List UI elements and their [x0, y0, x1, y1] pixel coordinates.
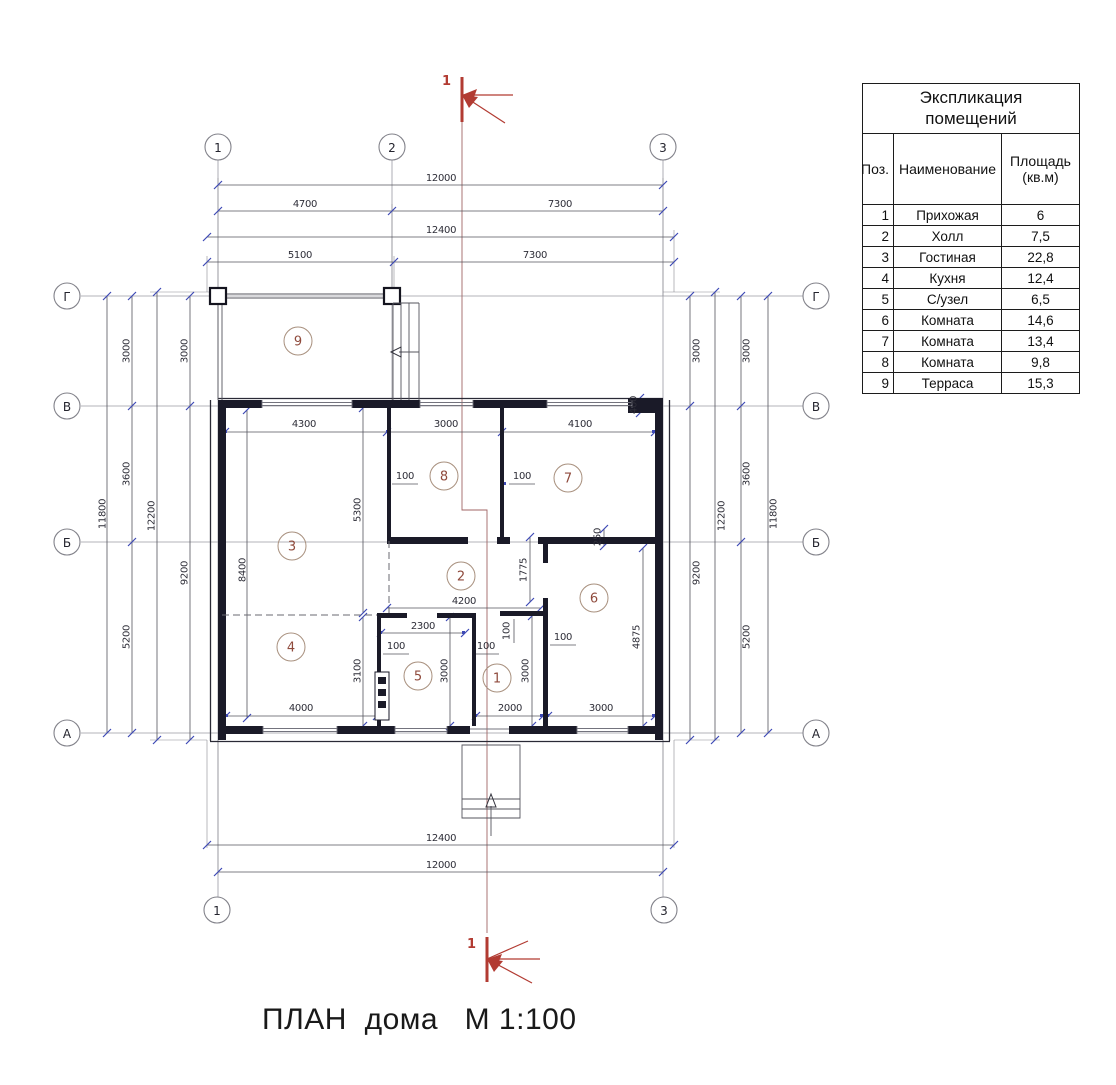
cell-name: Терраса — [894, 373, 1002, 393]
axis-label-b-right: Б — [812, 536, 820, 550]
dim-label: 3000 — [440, 659, 451, 683]
dim-label: 100 — [502, 622, 513, 640]
dim-label: 12200 — [147, 501, 158, 531]
table-title-line1: Экспликация — [863, 87, 1079, 108]
table-row: 5 С/узел 6,5 — [863, 289, 1079, 310]
dim-label: 2300 — [411, 621, 435, 632]
room-number: 3 — [288, 540, 296, 555]
axis-labels: 1 2 3 1 3 Г В Б А Г В Б А — [63, 141, 821, 918]
dim-label: 4000 — [289, 703, 313, 714]
dim-label: 5300 — [353, 498, 364, 522]
cell-area: 14,6 — [1002, 310, 1079, 330]
cell-area: 7,5 — [1002, 226, 1079, 246]
dim-label: 12400 — [426, 833, 456, 844]
col-header-name: Наименование — [894, 134, 1002, 204]
cell-name: Прихожая — [894, 205, 1002, 225]
axis-label-1-bottom: 1 — [213, 904, 221, 918]
dim-label: 100 — [554, 632, 572, 643]
dim-label: 3000 — [742, 339, 753, 363]
dim-label: 3000 — [521, 659, 532, 683]
room-number: 6 — [590, 592, 598, 607]
cell-pos: 3 — [863, 247, 894, 267]
cell-name: Комната — [894, 310, 1002, 330]
drawing-title: ПЛАН дома М 1:100 — [262, 1003, 577, 1037]
cell-pos: 2 — [863, 226, 894, 246]
section-label-top: 1 — [442, 74, 451, 89]
cell-area: 9,8 — [1002, 352, 1079, 372]
cell-pos: 7 — [863, 331, 894, 351]
dim-label: 3600 — [122, 462, 133, 486]
dim-label: 3000 — [122, 339, 133, 363]
table-row: 7 Комната 13,4 — [863, 331, 1079, 352]
section-arrow — [462, 95, 478, 108]
cell-pos: 8 — [863, 352, 894, 372]
vent-shaft — [375, 672, 389, 720]
axis-label-b-left: Б — [63, 536, 71, 550]
terrace-column — [210, 288, 226, 304]
dimension-labels-interior: 4300 3000 4100 4200 2300 4000 2000 3000 … — [238, 396, 643, 714]
dim-label: 3000 — [692, 339, 703, 363]
floor-plan-sheet: 1 1 — [0, 0, 1116, 1080]
cell-pos: 1 — [863, 205, 894, 225]
axis-label-g-left: Г — [63, 290, 70, 304]
section-label-bottom: 1 — [467, 937, 476, 952]
dim-label: 7300 — [548, 199, 572, 210]
terrace-lines — [218, 294, 392, 400]
dim-label: 5200 — [742, 625, 753, 649]
cell-pos: 5 — [863, 289, 894, 309]
porch-lines — [462, 745, 520, 836]
dim-label: 11800 — [769, 499, 780, 529]
dim-label: 7300 — [523, 250, 547, 261]
axis-grid — [81, 160, 803, 897]
table-row: 1 Прихожая 6 — [863, 205, 1079, 226]
cell-name: Комната — [894, 331, 1002, 351]
axis-label-g-right: Г — [812, 290, 819, 304]
axis-label-2: 2 — [388, 141, 396, 155]
dim-label: 4200 — [452, 596, 476, 607]
dim-label: 12000 — [426, 860, 456, 871]
porch-direction-arrow — [486, 794, 496, 807]
dim-label: 100 — [477, 641, 495, 652]
table-title-line2: помещений — [863, 108, 1079, 129]
axis-label-a-left: А — [63, 727, 72, 741]
cell-area: 22,8 — [1002, 247, 1079, 267]
room-number: 2 — [457, 570, 465, 585]
dim-label: 4300 — [292, 419, 316, 430]
axis-lines — [81, 160, 803, 897]
dim-label: 2000 — [498, 703, 522, 714]
cell-pos: 6 — [863, 310, 894, 330]
cell-area: 6 — [1002, 205, 1079, 225]
section-line — [462, 112, 487, 933]
col-header-area: Площадь (кв.м) — [1002, 134, 1079, 204]
axis-label-a-right: А — [812, 727, 821, 741]
cell-name: Гостиная — [894, 247, 1002, 267]
terrace-stairs — [393, 303, 419, 400]
dim-label: 4100 — [568, 419, 592, 430]
dim-label: 1775 — [519, 558, 530, 582]
table-title: Экспликация помещений — [863, 84, 1079, 134]
room-explication-table: Экспликация помещений Поз. Наименование … — [862, 83, 1080, 394]
room-number: 8 — [440, 470, 448, 485]
dim-label: 3000 — [434, 419, 458, 430]
col-header-pos: Поз. — [863, 134, 894, 204]
table-row: 6 Комната 14,6 — [863, 310, 1079, 331]
dim-label: 4875 — [632, 625, 643, 649]
cell-pos: 4 — [863, 268, 894, 288]
entrance-porch — [462, 745, 520, 836]
section-arrow — [487, 959, 503, 972]
terrace-column — [384, 288, 400, 304]
table-row: 8 Комната 9,8 — [863, 352, 1079, 373]
cell-name: Кухня — [894, 268, 1002, 288]
wall-outer-face — [210, 399, 670, 742]
dim-label: 11800 — [98, 499, 109, 529]
room-number: 4 — [287, 641, 295, 656]
axis-label-1: 1 — [214, 141, 222, 155]
axis-label-v-left: В — [63, 400, 71, 414]
dim-label: 3000 — [589, 703, 613, 714]
cell-pos: 9 — [863, 373, 894, 393]
dim-label: 9200 — [692, 561, 703, 585]
cell-area: 13,4 — [1002, 331, 1079, 351]
room-number: 5 — [414, 670, 422, 685]
dim-label: 12200 — [717, 501, 728, 531]
cell-area: 15,3 — [1002, 373, 1079, 393]
axis-bubbles — [54, 134, 829, 923]
dim-label: 3000 — [180, 339, 191, 363]
dimension-labels-right: 3000 9200 12200 3000 3600 5200 11800 — [692, 339, 780, 649]
cell-area: 6,5 — [1002, 289, 1079, 309]
cell-area: 12,4 — [1002, 268, 1079, 288]
table-row: 2 Холл 7,5 — [863, 226, 1079, 247]
dimension-labels-bottom: 12400 12000 — [426, 833, 456, 871]
dim-label: 5100 — [288, 250, 312, 261]
section-cut: 1 1 — [442, 74, 540, 983]
walls — [218, 398, 663, 740]
dimension-labels-left: 11800 3000 3600 5200 12200 3000 9200 — [98, 339, 191, 649]
room-number: 7 — [564, 472, 572, 487]
room-number: 1 — [493, 672, 501, 687]
table-row: 9 Терраса 15,3 — [863, 373, 1079, 393]
cell-name: Комната — [894, 352, 1002, 372]
dim-label: 4700 — [293, 199, 317, 210]
table-row: 3 Гостиная 22,8 — [863, 247, 1079, 268]
extension-lines — [150, 178, 720, 875]
axis-label-3-bottom: 3 — [660, 904, 668, 918]
dim-label: 100 — [396, 471, 414, 482]
dimension-labels-top: 12000 4700 7300 12400 5100 7300 — [288, 173, 572, 261]
table-row: 4 Кухня 12,4 — [863, 268, 1079, 289]
axis-label-v-right: В — [812, 400, 820, 414]
dim-label: 12000 — [426, 173, 456, 184]
vent-shaft-channels — [378, 677, 386, 708]
dimension-ticks — [103, 181, 772, 876]
dim-label: 250 — [593, 528, 604, 546]
room-numbers: 9 3 8 7 2 6 4 5 1 — [287, 335, 598, 687]
dim-label: 9200 — [180, 561, 191, 585]
cell-name: С/узел — [894, 289, 1002, 309]
dim-label: 5200 — [122, 625, 133, 649]
dim-label: 3600 — [742, 462, 753, 486]
room-number: 9 — [294, 335, 302, 350]
dim-label: 100 — [387, 641, 405, 652]
table-header-row: Поз. Наименование Площадь (кв.м) — [863, 134, 1079, 205]
dim-label: 8400 — [238, 558, 249, 582]
dim-label: 12400 — [426, 225, 456, 236]
dim-label: 400 — [629, 396, 640, 414]
axis-label-3: 3 — [659, 141, 667, 155]
dim-label: 3100 — [353, 659, 364, 683]
dim-label: 100 — [513, 471, 531, 482]
cell-name: Холл — [894, 226, 1002, 246]
table-body: 1 Прихожая 6 2 Холл 7,5 3 Гостиная 22,8 … — [863, 205, 1079, 393]
terrace — [210, 288, 419, 400]
